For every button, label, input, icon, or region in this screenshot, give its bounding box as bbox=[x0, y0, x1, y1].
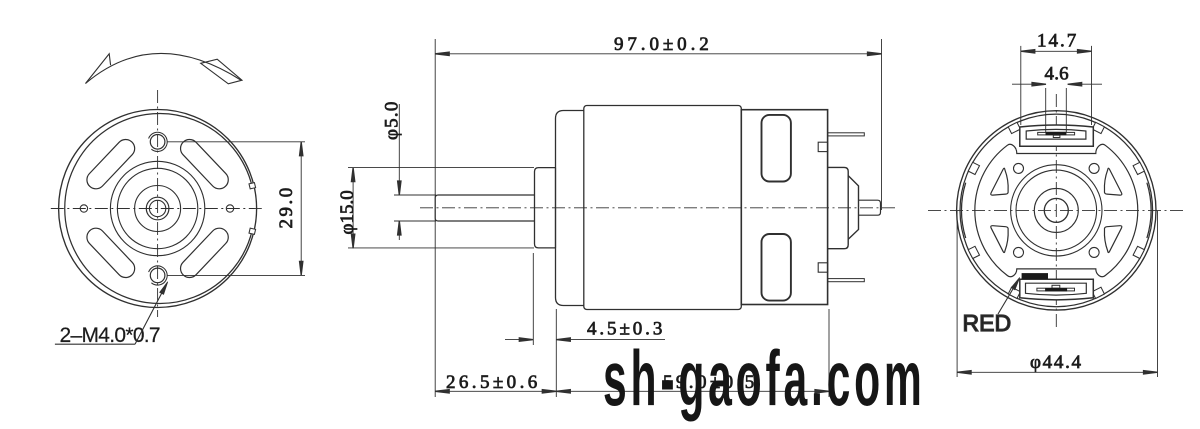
svg-text:φ44.4: φ44.4 bbox=[1030, 352, 1083, 373]
svg-text:97.0±0.2: 97.0±0.2 bbox=[614, 34, 713, 55]
svg-text:4.6: 4.6 bbox=[1045, 64, 1069, 85]
svg-text:sh-gaofa.com: sh-gaofa.com bbox=[603, 336, 926, 423]
svg-text:φ15.0: φ15.0 bbox=[337, 190, 358, 234]
svg-text:14.7: 14.7 bbox=[1037, 31, 1078, 52]
svg-text:29.0: 29.0 bbox=[276, 185, 297, 228]
svg-text:φ5.0: φ5.0 bbox=[382, 100, 403, 140]
svg-text:RED: RED bbox=[963, 310, 1012, 336]
svg-text:26.5±0.6: 26.5±0.6 bbox=[446, 372, 541, 393]
svg-text:2–M4.0*0.7: 2–M4.0*0.7 bbox=[60, 324, 160, 347]
